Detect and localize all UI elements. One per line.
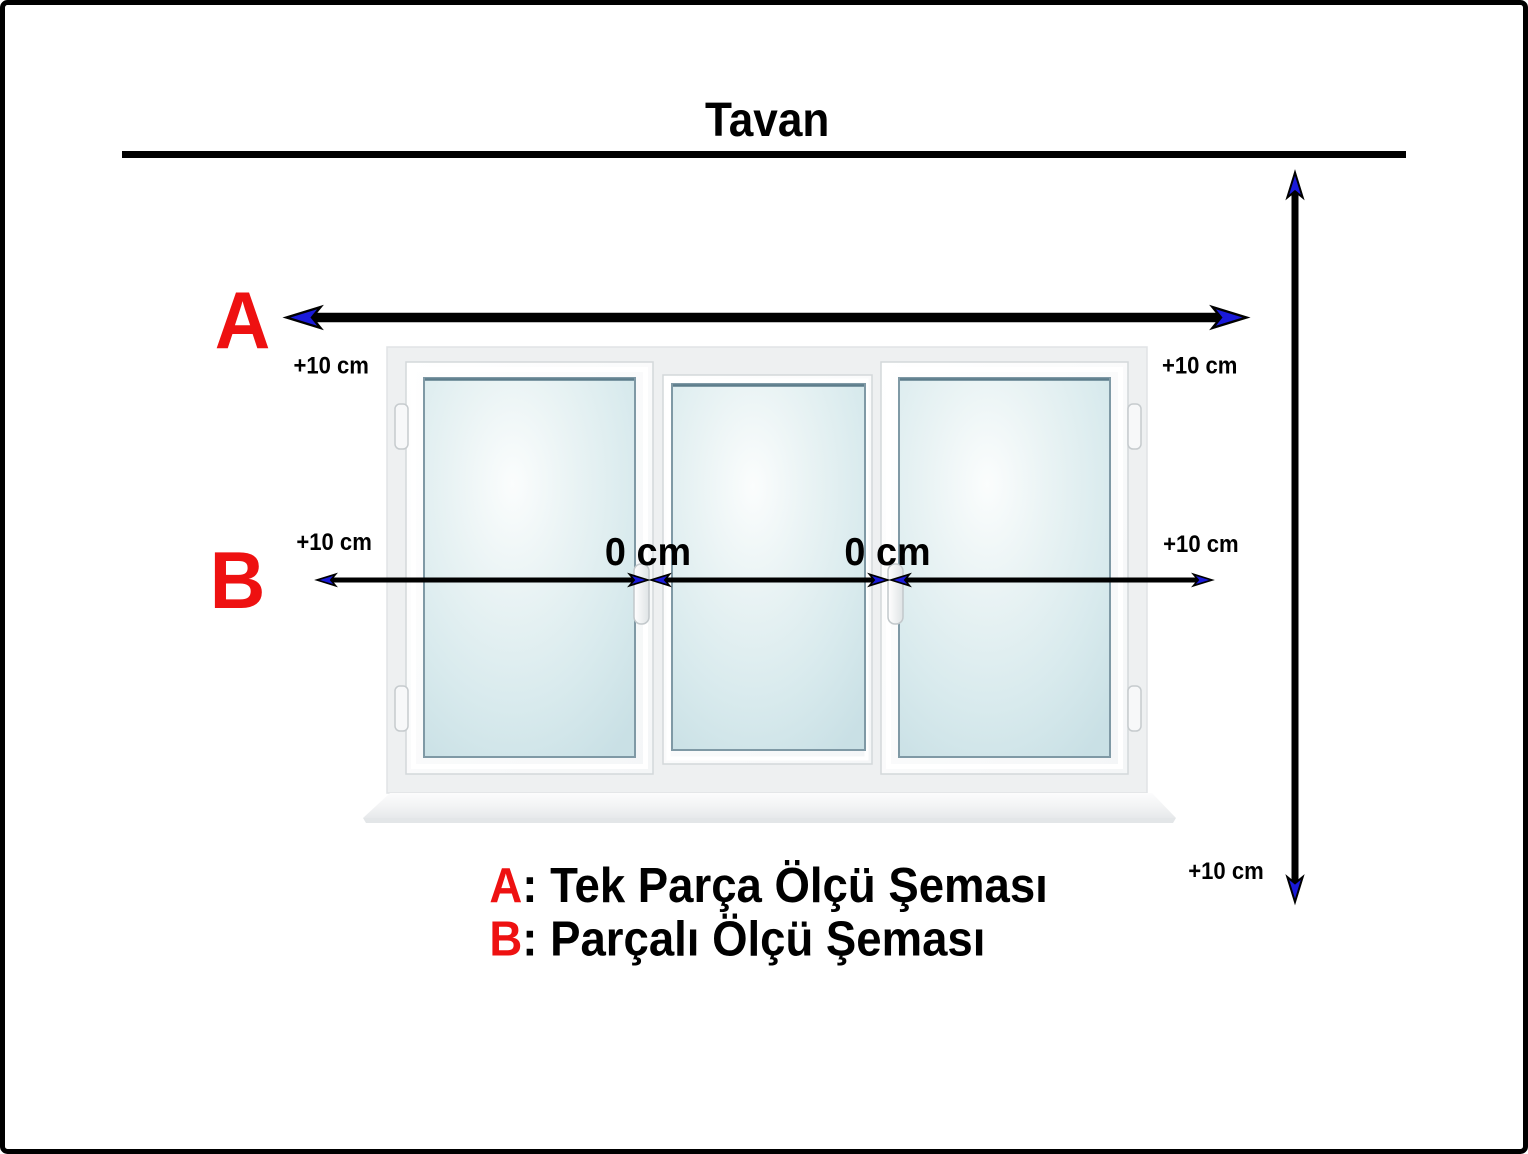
svg-text:Tavan: Tavan <box>705 92 829 146</box>
svg-text:+10 cm: +10 cm <box>1163 530 1238 557</box>
svg-text:A: A <box>215 274 271 365</box>
svg-text:+10 cm: +10 cm <box>1188 857 1263 884</box>
svg-text:B: B <box>210 534 266 625</box>
svg-text:0 cm: 0 cm <box>844 530 930 574</box>
svg-text:B: Parçalı Ölçü Şeması: B: Parçalı Ölçü Şeması <box>489 912 985 967</box>
svg-text:+10 cm: +10 cm <box>1162 351 1237 378</box>
svg-text:A: Tek Parça Ölçü Şeması: A: Tek Parça Ölçü Şeması <box>489 858 1047 913</box>
svg-text:+10 cm: +10 cm <box>293 351 368 378</box>
svg-text:+10 cm: +10 cm <box>296 528 371 555</box>
svg-text:0 cm: 0 cm <box>605 530 691 574</box>
